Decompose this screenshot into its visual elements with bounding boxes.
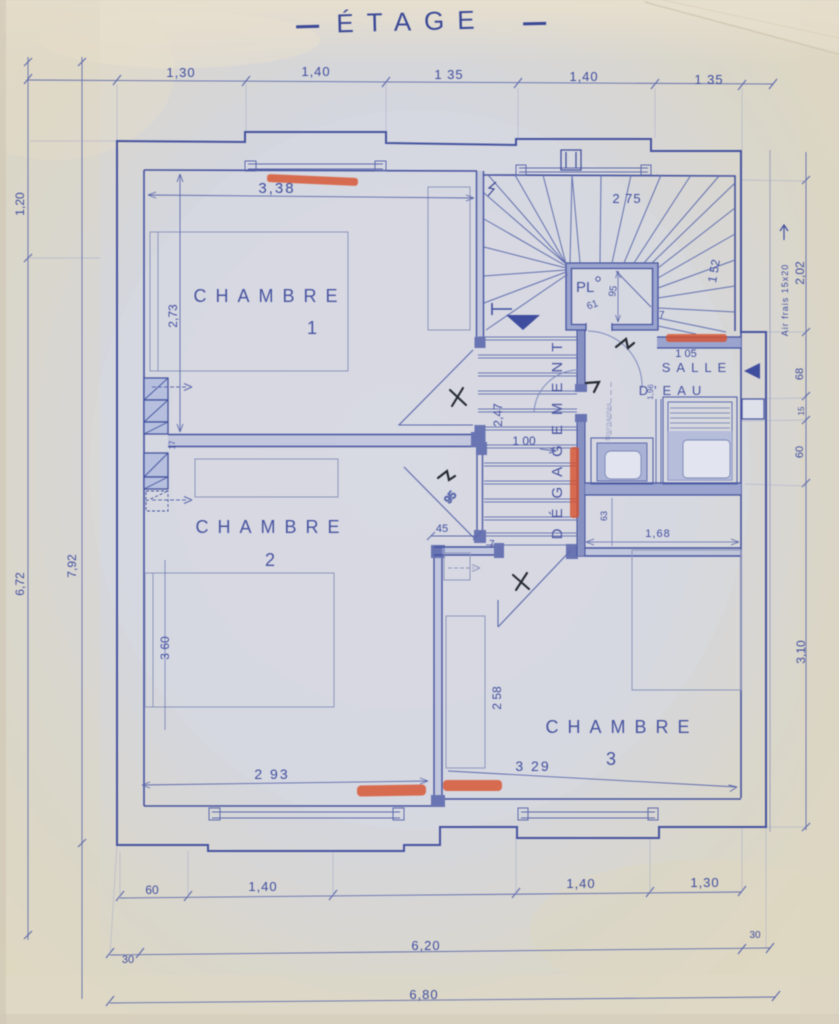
svg-text:15: 15 [797, 406, 806, 415]
svg-text:ÉTAGE: ÉTAGE [336, 4, 488, 38]
svg-text:2: 2 [265, 550, 275, 570]
svg-text:1,40: 1,40 [248, 879, 277, 894]
svg-text:1,40: 1,40 [569, 69, 598, 84]
svg-text:6,72: 6,72 [13, 572, 27, 596]
svg-text:3 60: 3 60 [158, 636, 172, 660]
svg-text:1,40: 1,40 [566, 876, 595, 891]
svg-text:SALLE: SALLE [662, 360, 732, 375]
svg-text:PL: PL [576, 279, 594, 296]
svg-text:Air frais 15x20: Air frais 15x20 [780, 264, 790, 337]
svg-text:1,30: 1,30 [690, 875, 719, 890]
svg-text:1 00: 1 00 [512, 434, 536, 448]
svg-text:6,80: 6,80 [409, 987, 438, 1002]
svg-text:CHAMBRE: CHAMBRE [195, 517, 348, 537]
svg-text:3 29: 3 29 [515, 758, 550, 774]
svg-text:60: 60 [794, 446, 806, 458]
svg-text:CHAMBRE: CHAMBRE [193, 286, 346, 306]
svg-text:63: 63 [599, 511, 609, 521]
svg-text:DÉGAGEMENT: DÉGAGEMENT [549, 333, 566, 540]
svg-text:6,20: 6,20 [411, 938, 440, 953]
svg-text:7: 7 [489, 539, 495, 550]
svg-text:3: 3 [606, 749, 616, 769]
svg-text:2 58: 2 58 [490, 686, 504, 710]
svg-text:1,68: 1,68 [645, 528, 670, 540]
svg-text:7: 7 [659, 310, 665, 321]
svg-text:D'EAU: D'EAU [639, 383, 708, 398]
svg-text:1 35: 1 35 [694, 72, 723, 87]
svg-text:2 93: 2 93 [254, 766, 289, 782]
svg-text:2,73: 2,73 [166, 304, 180, 328]
svg-text:3,10: 3,10 [794, 640, 808, 664]
svg-text:7,92: 7,92 [65, 554, 79, 578]
svg-text:1,30: 1,30 [166, 65, 195, 80]
svg-text:17: 17 [168, 440, 177, 449]
svg-text:1 35: 1 35 [434, 67, 463, 82]
svg-text:CHAMBRE: CHAMBRE [545, 717, 698, 737]
svg-text:1,40: 1,40 [301, 64, 330, 79]
svg-text:2,02: 2,02 [793, 261, 807, 285]
svg-text:1,20: 1,20 [13, 192, 27, 216]
svg-text:1: 1 [307, 318, 317, 338]
svg-text:1 05: 1 05 [675, 348, 696, 360]
svg-text:60: 60 [145, 883, 159, 897]
svg-text:45: 45 [436, 523, 448, 535]
svg-text:2,47: 2,47 [491, 403, 505, 427]
svg-text:30: 30 [122, 954, 134, 966]
svg-text:68: 68 [794, 368, 806, 380]
svg-text:2 75: 2 75 [612, 191, 641, 206]
svg-text:30: 30 [749, 930, 761, 941]
